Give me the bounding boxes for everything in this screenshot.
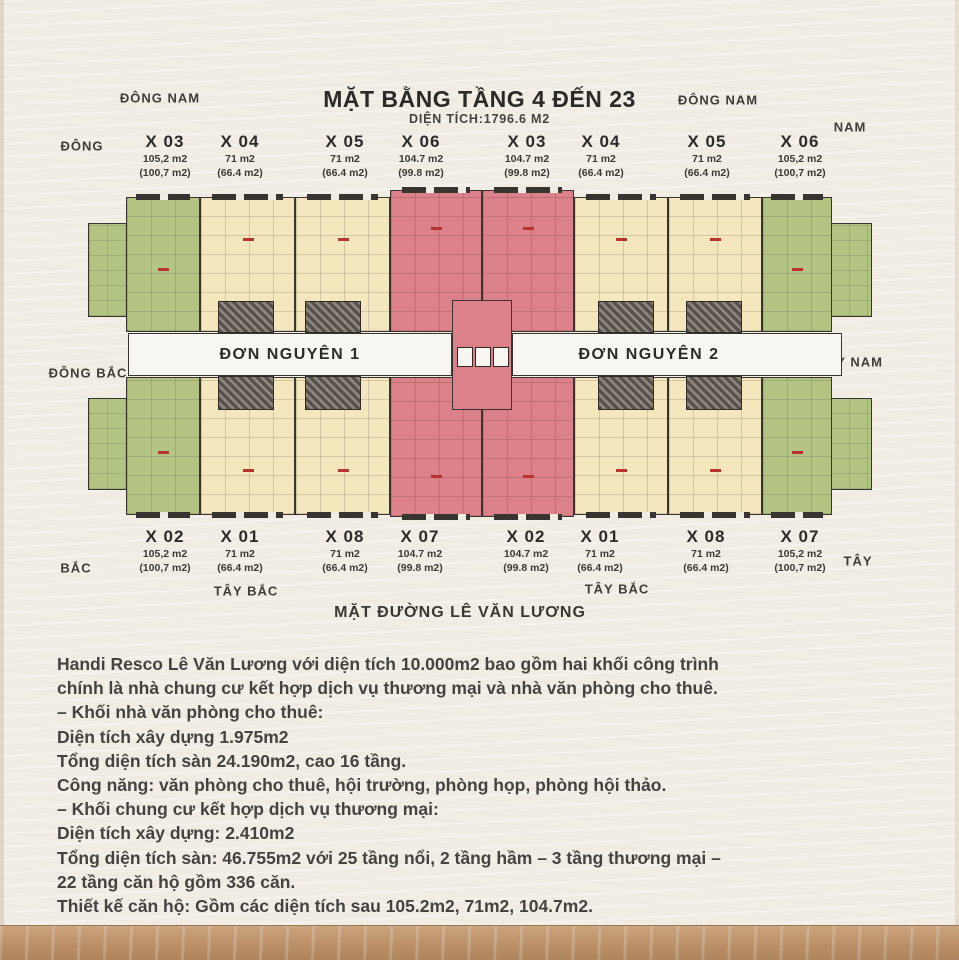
frame-edge-left [0, 0, 4, 926]
stair-core [598, 376, 654, 410]
corridor-don-nguyen-1: ĐƠN NGUYÊN 1 [128, 333, 452, 376]
floor-plan-poster: MẶT BẰNG TẦNG 4 ĐẾN 23 DIỆN TÍCH:1796.6 … [0, 0, 959, 960]
unit-label-top-x04a: X 04 71 m2 (66.4 m2) [192, 133, 288, 178]
unit-label-top-x06a: X 06 104.7 m2 (99.8 m2) [373, 133, 469, 178]
stair-core [218, 376, 274, 410]
elevator-core [686, 376, 742, 410]
compass-dong: ĐÔNG [61, 139, 104, 154]
frame-edge-right [955, 0, 959, 926]
plan-wing-bottom-right [830, 398, 872, 490]
unit-label-top-x04b: X 04 71 m2 (66.4 m2) [553, 133, 649, 178]
description-line: Diện tích xây dựng: 2.410m2 [57, 821, 907, 845]
plan-unit-bottom-x02a [126, 377, 200, 515]
description-line: 22 tầng căn hộ gồm 336 căn. [57, 870, 907, 894]
unit-label-bottom-x07a: X 07 104.7 m2 (99.8 m2) [372, 528, 468, 573]
compass-tay-bac-2: TÂY BẮC [585, 582, 650, 597]
description-line: Thiết kế căn hộ: Gồm các diện tích sau 1… [57, 894, 907, 918]
description-line: Công năng: văn phòng cho thuê, hội trườn… [57, 773, 907, 797]
corridor-1-label: ĐƠN NGUYÊN 1 [220, 346, 361, 364]
stair-core [218, 301, 274, 333]
stair-core [598, 301, 654, 333]
corridor-don-nguyen-2: ĐƠN NGUYÊN 2 [512, 333, 842, 376]
compass-dong-bac: ĐÔNG BẮC [49, 366, 128, 381]
corridor-2-label: ĐƠN NGUYÊN 2 [579, 346, 720, 364]
description-line: Handi Resco Lê Văn Lương với diện tích 1… [57, 652, 907, 676]
project-description: Handi Resco Lê Văn Lương với diện tích 1… [57, 652, 907, 918]
central-elevator-core [452, 300, 512, 410]
compass-dong-nam-left: ĐÔNG NAM [120, 91, 200, 106]
description-line: – Khối chung cư kết hợp dịch vụ thương m… [57, 797, 907, 821]
elevator-core [305, 301, 361, 333]
compass-dong-nam-right: ĐÔNG NAM [678, 93, 758, 108]
plan-wing-bottom-left [88, 398, 130, 490]
description-line: Tổng diện tích sàn 24.190m2, cao 16 tầng… [57, 749, 907, 773]
description-line: – Khối nhà văn phòng cho thuê: [57, 700, 907, 724]
description-line: chính là nhà chung cư kết hợp dịch vụ th… [57, 676, 907, 700]
unit-label-bottom-x07b: X 07 105,2 m2 (100,7 m2) [752, 528, 848, 573]
plan-wing-top-left [88, 223, 130, 317]
plan-unit-top-x06b [762, 197, 832, 332]
compass-bac: BẮC [60, 561, 91, 576]
plan-wing-top-right [830, 223, 872, 317]
unit-label-bottom-x08b: X 08 71 m2 (66.4 m2) [658, 528, 754, 573]
description-line: Diện tích xây dựng 1.975m2 [57, 725, 907, 749]
elevator-core [686, 301, 742, 333]
street-label: MẶT ĐƯỜNG LÊ VĂN LƯƠNG [330, 604, 590, 622]
page-subtitle: DIỆN TÍCH:1796.6 M2 [0, 112, 959, 126]
unit-label-bottom-x01a: X 01 71 m2 (66.4 m2) [192, 528, 288, 573]
elevator-core [305, 376, 361, 410]
plan-unit-bottom-x07b [762, 377, 832, 515]
wood-frame-bottom [0, 925, 959, 960]
description-line: Tổng diện tích sàn: 46.755m2 với 25 tầng… [57, 846, 907, 870]
unit-label-bottom-x01b: X 01 71 m2 (66.4 m2) [552, 528, 648, 573]
compass-tay-bac-1: TÂY BẮC [214, 584, 279, 599]
unit-label-top-x05b: X 05 71 m2 (66.4 m2) [659, 133, 755, 178]
plan-unit-top-x03a [126, 197, 200, 332]
unit-label-top-x06b: X 06 105,2 m2 (100,7 m2) [752, 133, 848, 178]
